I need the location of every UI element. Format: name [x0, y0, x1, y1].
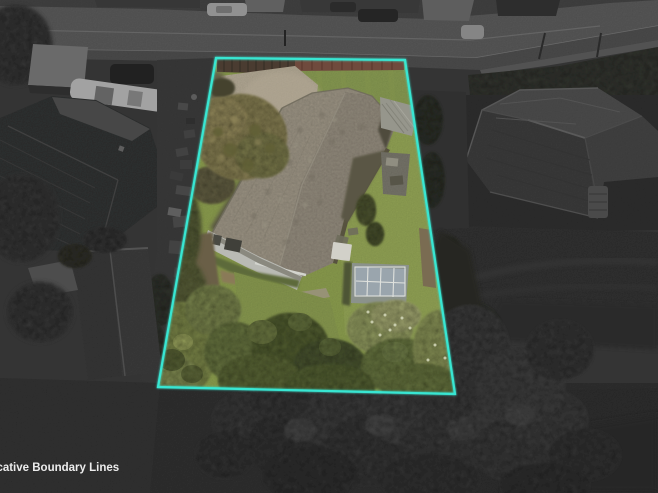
- svg-text:Indicative Boundary Lines: Indicative Boundary Lines: [0, 462, 119, 474]
